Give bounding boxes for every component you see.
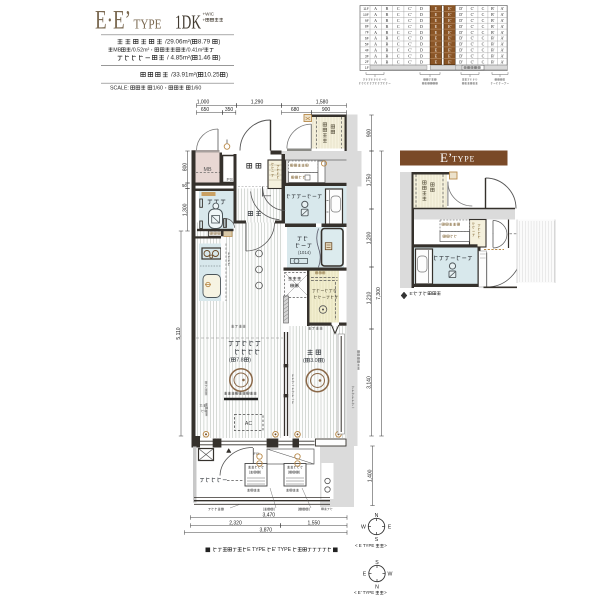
- svg-text:D': D': [459, 36, 463, 41]
- svg-text:/ 4.85m²(: / 4.85m²(: [167, 55, 193, 62]
- svg-text:W: W: [361, 525, 366, 531]
- svg-text:B': B': [491, 12, 495, 17]
- svg-text:5,110: 5,110: [176, 327, 182, 339]
- svg-text:9F: 9F: [365, 19, 369, 23]
- svg-text:B: B: [386, 59, 389, 64]
- svg-text:B': B': [491, 53, 495, 58]
- svg-text:B: B: [386, 53, 389, 58]
- svg-text:10.25: 10.25: [204, 72, 220, 79]
- svg-text:C': C': [408, 30, 412, 35]
- svg-text:C: C: [397, 18, 400, 23]
- svg-text:C': C': [408, 59, 412, 64]
- svg-text:(: (: [229, 357, 231, 363]
- svg-text:A': A': [500, 36, 504, 41]
- svg-text:1,580: 1,580: [316, 100, 329, 106]
- svg-text:E': E': [448, 6, 452, 11]
- svg-text:7,300: 7,300: [376, 287, 382, 300]
- svg-text:D: D: [420, 53, 423, 58]
- svg-text:D': D': [459, 24, 463, 29]
- svg-text:E': E': [448, 53, 452, 58]
- svg-text:): ): [323, 358, 325, 364]
- svg-text:): ): [219, 55, 221, 62]
- svg-text:D: D: [420, 48, 423, 53]
- svg-text:MB: MB: [113, 47, 121, 53]
- svg-text:1,200: 1,200: [366, 232, 372, 245]
- svg-text:C: C: [482, 36, 485, 41]
- svg-text:B': B': [491, 6, 495, 11]
- svg-text:1,400: 1,400: [367, 469, 373, 482]
- svg-text:): ): [218, 39, 220, 46]
- svg-text:C': C': [471, 12, 475, 17]
- svg-text:D: D: [420, 30, 423, 35]
- svg-text:+: +: [203, 17, 206, 22]
- svg-text:D: D: [420, 24, 423, 29]
- svg-text:C: C: [482, 30, 485, 35]
- svg-text:3,870: 3,870: [260, 527, 273, 533]
- svg-text:E': E': [448, 48, 452, 53]
- svg-text:E': E': [448, 36, 452, 41]
- svg-text:E: E: [435, 59, 438, 64]
- svg-text:>: >: [384, 543, 387, 548]
- svg-text:E': E': [448, 30, 452, 35]
- svg-text:900: 900: [366, 129, 372, 138]
- svg-text:C': C': [471, 53, 475, 58]
- svg-text:8.79: 8.79: [198, 39, 211, 46]
- svg-text:W: W: [388, 572, 393, 578]
- svg-text:5F: 5F: [365, 43, 369, 47]
- svg-text:1DK: 1DK: [175, 13, 201, 34]
- svg-text:C': C': [471, 59, 475, 64]
- svg-text:E TYPE: E TYPE: [247, 547, 266, 553]
- svg-text:MB: MB: [203, 167, 211, 173]
- svg-text:A': A': [500, 18, 504, 23]
- svg-text:C: C: [397, 12, 400, 17]
- svg-text:D': D': [459, 12, 463, 17]
- svg-text:A: A: [374, 48, 377, 53]
- svg-text:C': C': [471, 6, 475, 11]
- svg-text:A': A': [500, 24, 504, 29]
- svg-text:3,140: 3,140: [366, 376, 372, 389]
- svg-text:E': E': [448, 18, 452, 23]
- svg-text:B': B': [491, 30, 495, 35]
- svg-text:D': D': [459, 48, 463, 53]
- svg-text:B': B': [491, 18, 495, 23]
- svg-text:E': E': [448, 42, 452, 47]
- svg-text:A: A: [374, 53, 377, 58]
- svg-text:TYPE: TYPE: [134, 18, 162, 33]
- svg-text:(: (: [303, 358, 305, 364]
- svg-text:C': C': [471, 42, 475, 47]
- svg-text:E: E: [435, 18, 438, 23]
- svg-text:650: 650: [201, 107, 210, 113]
- svg-text:B: B: [386, 6, 389, 11]
- svg-text:): ): [274, 507, 275, 511]
- svg-text:A: A: [374, 24, 377, 29]
- svg-text:/29.06m²(: /29.06m²(: [165, 39, 193, 46]
- svg-text:C: C: [482, 18, 485, 23]
- svg-text:C': C': [408, 42, 412, 47]
- svg-text:B': B': [491, 48, 495, 53]
- svg-text:): ): [249, 357, 251, 363]
- svg-text:A': A': [500, 12, 504, 17]
- svg-text:D: D: [420, 6, 423, 11]
- svg-text:PS: PS: [227, 177, 233, 183]
- svg-text:C: C: [397, 59, 400, 64]
- svg-text:A': A': [500, 42, 504, 47]
- svg-text:B: B: [386, 18, 389, 23]
- svg-text:A: A: [374, 42, 377, 47]
- svg-text:B: B: [386, 42, 389, 47]
- svg-text:1,550: 1,550: [308, 520, 321, 526]
- svg-text:E': E': [448, 12, 452, 17]
- svg-text:D': D': [459, 6, 463, 11]
- svg-text:E': E': [448, 24, 452, 29]
- svg-text:D': D': [459, 59, 463, 64]
- svg-text:B': B': [491, 24, 495, 29]
- svg-text:A': A': [500, 30, 504, 35]
- svg-text:2,320: 2,320: [229, 520, 242, 526]
- svg-text:11F: 11F: [363, 7, 369, 11]
- svg-text:7.8: 7.8: [236, 357, 244, 363]
- svg-text:A: A: [374, 6, 377, 11]
- svg-text:A: A: [374, 59, 377, 64]
- svg-text:C: C: [482, 6, 485, 11]
- svg-text:D: D: [420, 18, 423, 23]
- svg-text:C': C': [471, 30, 475, 35]
- svg-text:B: B: [386, 12, 389, 17]
- svg-text:E' TYPE: E' TYPE: [272, 547, 292, 553]
- svg-text:E: E: [388, 525, 392, 531]
- svg-text:C: C: [397, 6, 400, 11]
- svg-text:1F: 1F: [365, 66, 369, 70]
- svg-text:C: C: [397, 24, 400, 29]
- svg-text:< E TYPE: < E TYPE: [355, 543, 374, 548]
- svg-text:E: E: [435, 30, 438, 35]
- svg-text:E': E': [448, 59, 452, 64]
- svg-text:350: 350: [225, 107, 234, 113]
- svg-text:3.0: 3.0: [310, 358, 318, 364]
- svg-text:C: C: [482, 53, 485, 58]
- svg-text:1,000: 1,000: [197, 100, 210, 106]
- svg-text:B': B': [491, 59, 495, 64]
- svg-text:6F: 6F: [365, 37, 369, 41]
- svg-text:N: N: [375, 513, 379, 519]
- svg-text:C: C: [482, 42, 485, 47]
- svg-text:680: 680: [291, 107, 300, 113]
- svg-text:C': C': [408, 24, 412, 29]
- svg-text:): ): [309, 507, 310, 511]
- svg-text:A': A': [500, 48, 504, 53]
- svg-text:E: E: [435, 53, 438, 58]
- svg-text:C': C': [408, 36, 412, 41]
- svg-text:TYPE: TYPE: [452, 155, 475, 164]
- svg-text:1/60: 1/60: [153, 85, 163, 91]
- svg-text:C: C: [482, 12, 485, 17]
- svg-text:7F: 7F: [365, 31, 369, 35]
- svg-text:E': E': [410, 291, 414, 296]
- svg-text:1/60: 1/60: [191, 85, 201, 91]
- svg-text:>: >: [384, 590, 387, 595]
- svg-text:A: A: [374, 36, 377, 41]
- svg-text:A: A: [374, 12, 377, 17]
- svg-text:A': A': [500, 59, 504, 64]
- svg-text:C: C: [482, 24, 485, 29]
- svg-text:C': C': [471, 24, 475, 29]
- svg-text:D': D': [459, 30, 463, 35]
- svg-text:S: S: [375, 560, 379, 566]
- svg-text:A: A: [374, 18, 377, 23]
- svg-text:B': B': [491, 36, 495, 41]
- svg-text:/0.41m²: /0.41m²: [186, 47, 204, 53]
- svg-text:S: S: [375, 537, 379, 543]
- svg-text:C: C: [397, 48, 400, 53]
- svg-text:C': C': [408, 12, 412, 17]
- svg-text:C': C': [408, 18, 412, 23]
- svg-text:C': C': [408, 6, 412, 11]
- svg-text:1,750: 1,750: [366, 174, 372, 187]
- svg-text:2F: 2F: [365, 60, 369, 64]
- svg-text:E: E: [435, 24, 438, 29]
- svg-text:E’: E’: [440, 150, 452, 165]
- svg-text:1,300: 1,300: [182, 203, 188, 216]
- svg-text:D: D: [420, 12, 423, 17]
- svg-text:C': C': [408, 53, 412, 58]
- svg-text:/0.52m²: /0.52m²: [131, 47, 149, 53]
- svg-text:B: B: [386, 36, 389, 41]
- svg-text:E: E: [435, 36, 438, 41]
- svg-text:10F: 10F: [363, 13, 369, 17]
- svg-text:(1014): (1014): [298, 250, 311, 255]
- svg-text:+WIC: +WIC: [203, 11, 215, 16]
- svg-text:C': C': [471, 18, 475, 23]
- svg-text:D': D': [459, 42, 463, 47]
- svg-text:C': C': [408, 48, 412, 53]
- svg-text:E: E: [435, 42, 438, 47]
- svg-text:900: 900: [322, 107, 331, 113]
- svg-text:A': A': [500, 53, 504, 58]
- svg-text:B: B: [386, 48, 389, 53]
- svg-text:B: B: [386, 24, 389, 29]
- svg-text:): ): [260, 470, 261, 474]
- svg-text:D': D': [459, 53, 463, 58]
- svg-text:E: E: [435, 48, 438, 53]
- svg-text:D': D': [459, 18, 463, 23]
- svg-text:C: C: [397, 36, 400, 41]
- svg-text:11: 11: [200, 404, 204, 408]
- svg-text:/33.91m²(: /33.91m²(: [171, 72, 199, 79]
- svg-text:1,210: 1,210: [366, 292, 372, 305]
- svg-text:C: C: [482, 59, 485, 64]
- svg-text:C: C: [397, 30, 400, 35]
- svg-text:C: C: [397, 53, 400, 58]
- svg-text:< E' TYPE: < E' TYPE: [354, 590, 374, 595]
- svg-text:A: A: [374, 30, 377, 35]
- svg-text:8F: 8F: [365, 25, 369, 29]
- svg-text:3,470: 3,470: [263, 512, 276, 518]
- svg-text:D: D: [420, 36, 423, 41]
- svg-text:1,290: 1,290: [251, 100, 264, 106]
- svg-text:4F: 4F: [365, 48, 369, 52]
- svg-text:D: D: [420, 42, 423, 47]
- svg-text:E: E: [435, 12, 438, 17]
- svg-text:C': C': [471, 36, 475, 41]
- svg-text:3F: 3F: [365, 54, 369, 58]
- svg-text:E: E: [435, 6, 438, 11]
- svg-text:): ): [226, 72, 228, 79]
- svg-text:C': C': [471, 48, 475, 53]
- svg-text:B': B': [491, 42, 495, 47]
- svg-text:): ): [299, 470, 300, 474]
- svg-text:SCALE:: SCALE:: [110, 85, 129, 91]
- svg-text:800: 800: [182, 163, 188, 172]
- svg-text:A': A': [500, 6, 504, 11]
- svg-text:B: B: [386, 30, 389, 35]
- svg-text:50: 50: [182, 183, 187, 188]
- svg-text:D: D: [420, 59, 423, 64]
- svg-text:N: N: [375, 585, 379, 591]
- svg-text:AC: AC: [245, 421, 252, 427]
- svg-text:E: E: [363, 572, 367, 578]
- svg-text:1.46: 1.46: [198, 55, 211, 62]
- svg-text:C: C: [397, 42, 400, 47]
- svg-text:C: C: [482, 48, 485, 53]
- svg-text:E·E’: E·E’: [95, 6, 131, 35]
